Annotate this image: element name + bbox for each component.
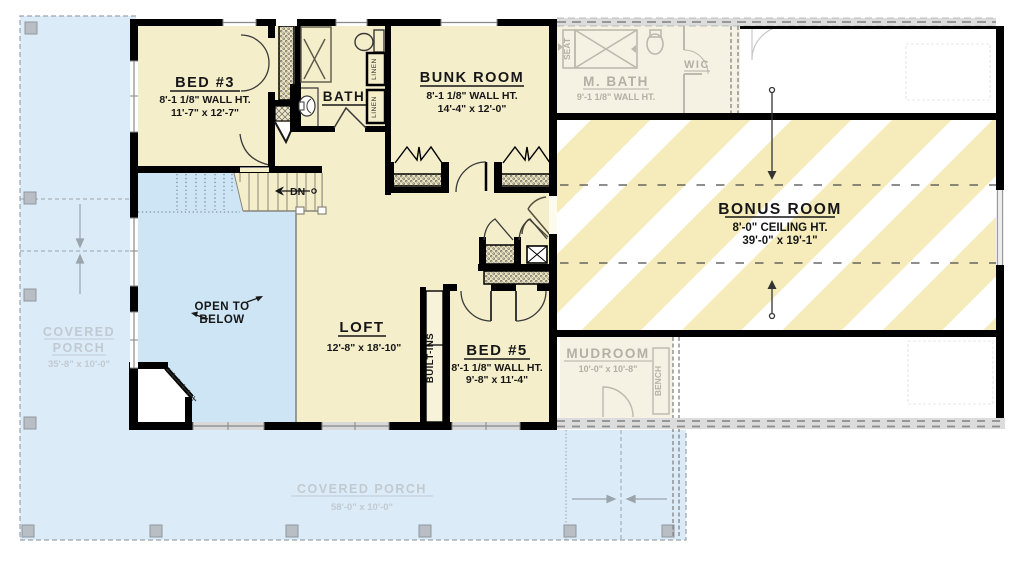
svg-text:BED #5: BED #5	[466, 342, 528, 359]
svg-text:11'-7" x 12'-7": 11'-7" x 12'-7"	[171, 107, 239, 119]
svg-text:WIC: WIC	[684, 59, 710, 71]
svg-text:COVERED: COVERED	[43, 325, 115, 339]
svg-text:OPEN TO: OPEN TO	[194, 301, 249, 313]
svg-text:BENCH: BENCH	[653, 366, 663, 396]
svg-text:8'-1 1/8" WALL HT.: 8'-1 1/8" WALL HT.	[426, 90, 517, 102]
svg-text:BONUS ROOM: BONUS ROOM	[718, 201, 842, 218]
svg-text:BATH: BATH	[323, 89, 366, 104]
svg-text:8'-1 1/8" WALL HT.: 8'-1 1/8" WALL HT.	[451, 362, 542, 374]
svg-text:DN: DN	[290, 186, 305, 198]
svg-text:9'-1 1/8" WALL HT.: 9'-1 1/8" WALL HT.	[577, 92, 655, 102]
svg-text:39'-0" x 19'-1": 39'-0" x 19'-1"	[742, 235, 817, 247]
svg-text:MUDROOM: MUDROOM	[566, 346, 649, 361]
svg-text:BED #3: BED #3	[175, 75, 235, 91]
svg-text:M. BATH: M. BATH	[583, 74, 649, 89]
svg-text:14'-4" x 12'-0": 14'-4" x 12'-0"	[438, 103, 507, 115]
svg-text:LINEN: LINEN	[371, 58, 378, 80]
svg-text:SEAT: SEAT	[562, 37, 572, 60]
svg-text:PORCH: PORCH	[53, 341, 106, 355]
svg-text:LINEN: LINEN	[371, 96, 378, 118]
svg-text:8'-1 1/8" WALL HT.: 8'-1 1/8" WALL HT.	[159, 94, 250, 106]
svg-text:BUNK ROOM: BUNK ROOM	[420, 70, 525, 86]
svg-text:9'-8" x 11'-4": 9'-8" x 11'-4"	[466, 374, 528, 386]
svg-text:35'-8" x 10'-0": 35'-8" x 10'-0"	[48, 359, 110, 370]
svg-text:COVERED PORCH: COVERED PORCH	[297, 482, 427, 496]
svg-text:10'-0" x 10'-8": 10'-0" x 10'-8"	[579, 364, 638, 374]
svg-text:LOFT: LOFT	[339, 319, 384, 336]
svg-text:8'-0" CEILING HT.: 8'-0" CEILING HT.	[732, 222, 827, 234]
svg-text:BUILT-INS: BUILT-INS	[425, 333, 436, 383]
svg-text:BELOW: BELOW	[199, 314, 244, 326]
svg-text:12'-8" x 18'-10": 12'-8" x 18'-10"	[327, 342, 402, 354]
svg-text:58'-0" x 10'-0": 58'-0" x 10'-0"	[331, 502, 393, 513]
